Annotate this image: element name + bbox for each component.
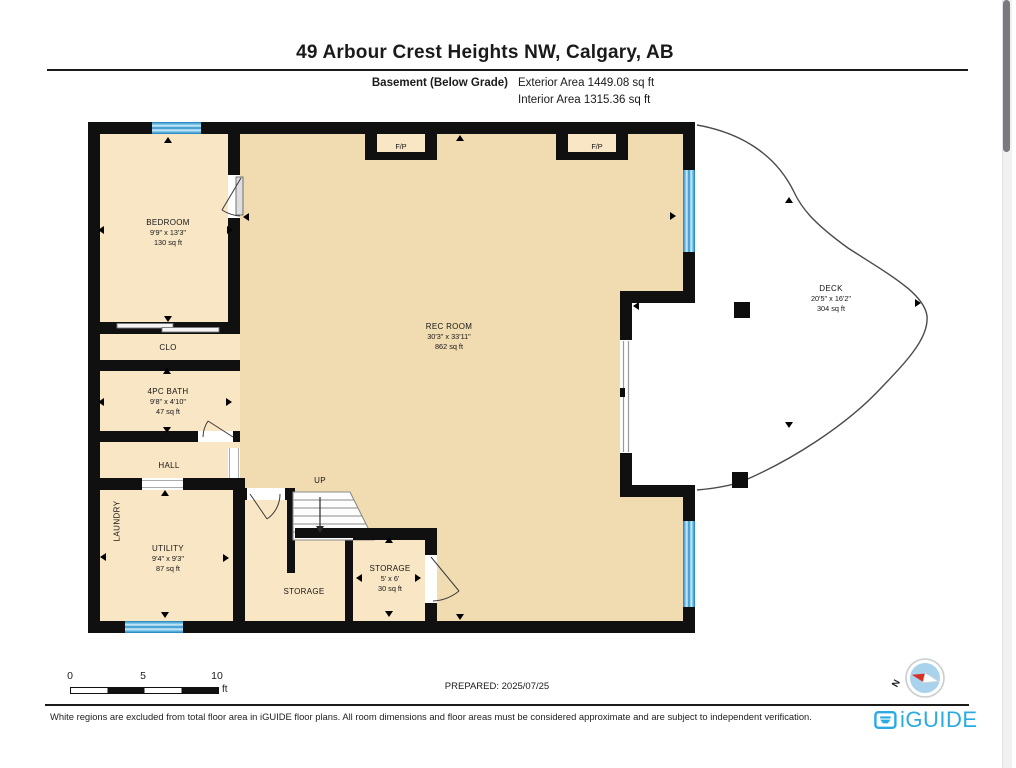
room-area: 87 sq ft [152,564,184,573]
compass [900,653,950,703]
room-name: CLO [159,343,176,353]
room-name: STORAGE [369,564,410,574]
room-area: 862 sq ft [426,342,472,351]
scale-unit: ft [222,684,228,695]
deck-post [732,472,748,488]
dimension-arrow [670,212,676,220]
room-area: 47 sq ft [148,407,189,416]
dimension-arrow [226,398,232,406]
scale-bar [70,687,219,694]
stairs-direction-text: UP [314,476,326,486]
footer-divider [45,704,969,706]
room-name: 4PC BATH [148,387,189,397]
door-swing-small-storage [431,557,459,601]
dimension-arrow [456,614,464,620]
dimension-arrow [100,553,106,561]
room-name: F/P [395,142,406,151]
room-label-closet: CLO [159,343,176,353]
dimension-arrow [385,537,393,543]
prepared-date: PREPARED: 2025/07/25 [427,681,567,692]
room-name: HALL [158,461,179,471]
dimension-arrow [915,299,921,307]
room-area: 130 sq ft [146,238,189,247]
room-area: 304 sq ft [811,304,851,313]
room-name: BEDROOM [146,218,189,228]
plan-linework [0,0,1016,768]
room-dims: 9'4" x 9'3" [152,554,184,563]
dimension-arrow [785,422,793,428]
fireplace-label: F/P [591,142,602,151]
iguide-logo: iGUIDE [874,707,978,733]
room-dims: 9'8" x 4'10" [148,397,189,406]
room-area: 30 sq ft [369,584,410,593]
iguide-wordmark: iGUIDE [900,707,978,733]
disclaimer-text: White regions are excluded from total fl… [50,711,850,722]
dimension-arrow [164,137,172,143]
room-dims: 30'3" x 33'11" [426,332,472,341]
dimension-arrow [161,490,169,496]
dimension-arrow [164,316,172,322]
dimension-arrow [163,368,171,374]
stairs-up-label: UP [314,476,326,486]
room-label-utility: UTILITY 9'4" x 9'3" 87 sq ft [152,544,184,573]
dimension-arrow [633,302,639,310]
room-label-bath: 4PC BATH 9'8" x 4'10" 47 sq ft [148,387,189,416]
door-swing-bath [203,421,233,437]
iguide-camera-icon [874,710,897,730]
deck-post [734,302,750,318]
dimension-arrow [785,197,793,203]
dimension-arrow [98,398,104,406]
scale-tick-5: 5 [140,670,146,682]
room-label-hall: HALL [158,461,179,471]
dimension-arrow [227,226,233,234]
floor-plan-page: 49 Arbour Crest Heights NW, Calgary, AB … [0,0,1016,768]
dimension-arrow [415,574,421,582]
room-label-laundry: LAUNDRY [113,501,122,542]
scale-tick-0: 0 [67,670,73,682]
dimension-arrow [98,226,104,234]
fireplace-label: F/P [395,142,406,151]
opening-jambs [142,448,239,488]
room-label-bedroom: BEDROOM 9'9" x 13'3" 130 sq ft [146,218,189,247]
room-name: DECK [811,284,851,294]
dimension-arrow [456,135,464,141]
room-label-deck: DECK 20'5" x 16'2" 304 sq ft [811,284,851,313]
dimension-arrow [223,554,229,562]
scrollbar-thumb[interactable] [1003,0,1010,152]
dimension-arrow [356,574,362,582]
dimension-arrow [385,611,393,617]
closet-bypass-doors [117,324,219,333]
dimension-arrow [163,427,171,433]
room-dims: 20'5" x 16'2" [811,294,851,303]
room-label-storage: STORAGE [283,587,324,597]
room-dims: 9'9" x 13'3" [146,228,189,237]
room-name: REC ROOM [426,322,472,332]
room-name: UTILITY [152,544,184,554]
room-label-small-storage: STORAGE 5' x 6' 30 sq ft [369,564,410,593]
room-name: STORAGE [283,587,324,597]
door-swing-storage [250,494,280,519]
room-dims: 5' x 6' [369,574,410,583]
dimension-arrow [243,213,249,221]
door-swing-bedroom [222,177,243,216]
room-name: F/P [591,142,602,151]
scale-tick-10: 10 [211,670,223,682]
sliding-door [620,341,630,453]
dimension-arrow [161,612,169,618]
room-label-rec-room: REC ROOM 30'3" x 33'11" 862 sq ft [426,322,472,351]
